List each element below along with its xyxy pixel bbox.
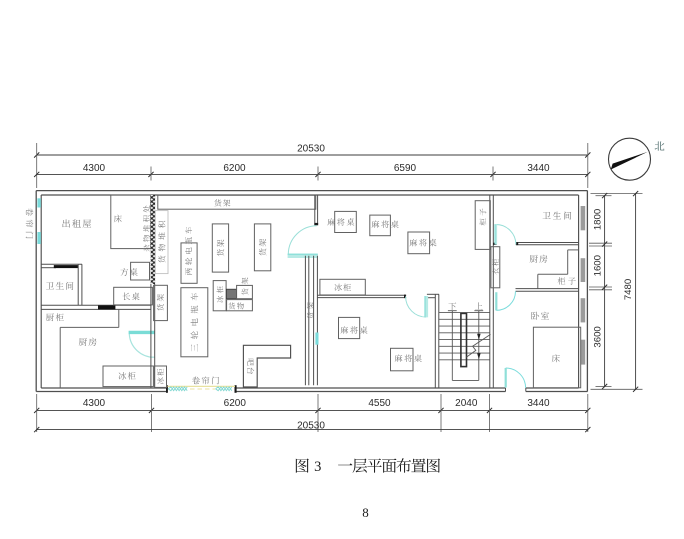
- svg-text:1800: 1800: [592, 209, 603, 230]
- svg-text:4550: 4550: [368, 398, 391, 409]
- svg-text:6200: 6200: [223, 163, 246, 174]
- svg-text:8: 8: [362, 505, 369, 520]
- svg-text:1600: 1600: [592, 255, 603, 276]
- svg-text:2040: 2040: [455, 398, 478, 409]
- svg-text:6590: 6590: [394, 163, 417, 174]
- svg-text:3: 3: [314, 459, 321, 475]
- svg-text:20530: 20530: [297, 143, 325, 154]
- svg-text:7480: 7480: [623, 279, 634, 300]
- svg-text:20530: 20530: [297, 420, 325, 431]
- svg-text:6200: 6200: [224, 398, 247, 409]
- svg-text:3440: 3440: [527, 163, 550, 174]
- svg-text:4300: 4300: [83, 398, 106, 409]
- svg-text:3600: 3600: [592, 326, 603, 347]
- svg-text:4300: 4300: [83, 163, 106, 174]
- svg-text:3440: 3440: [527, 398, 550, 409]
